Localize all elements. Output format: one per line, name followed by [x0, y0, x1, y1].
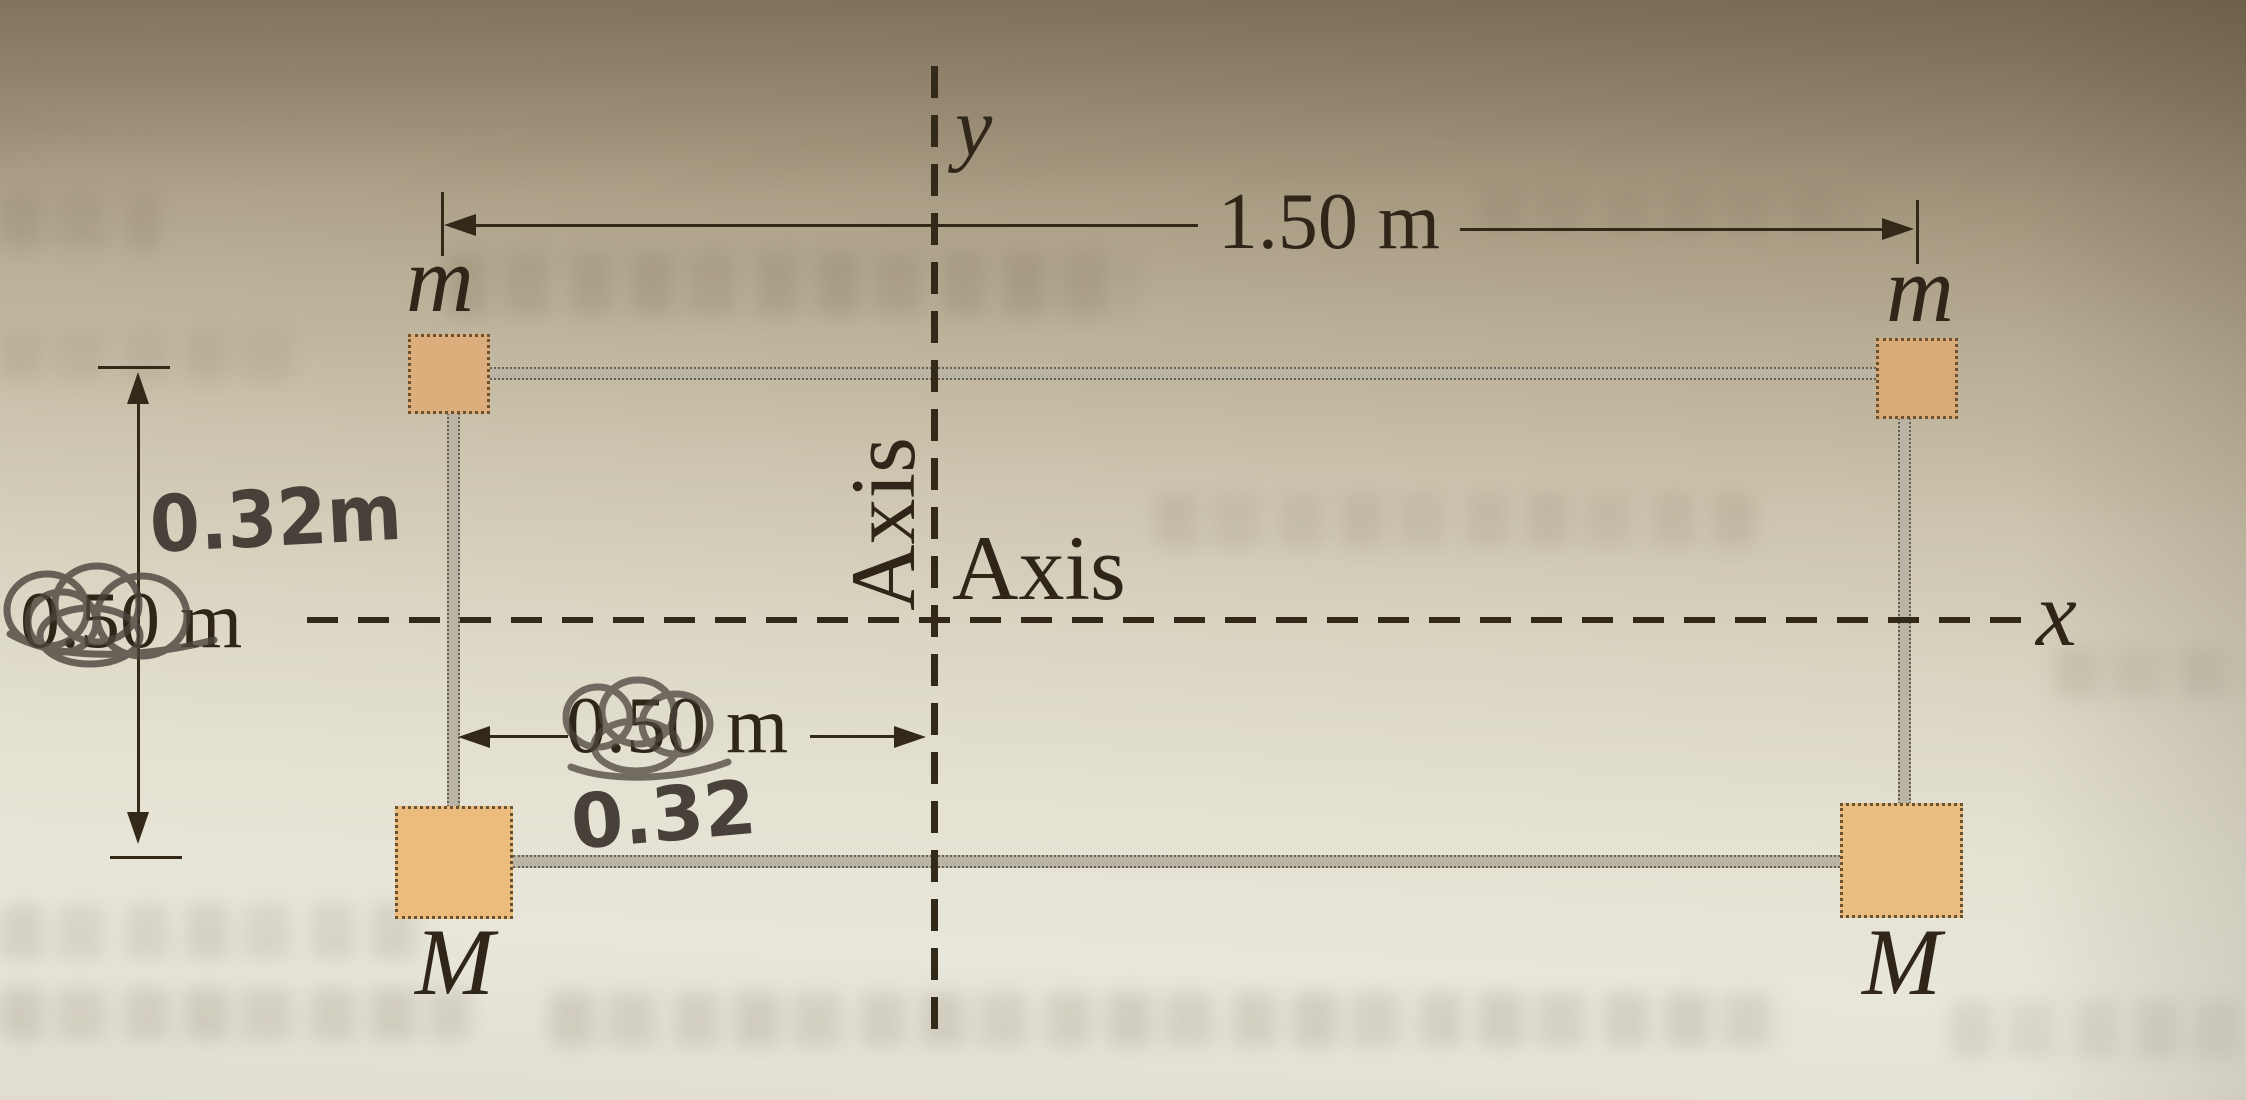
- mass-block-top-right: [1876, 338, 1958, 419]
- ghost-text-smudge: [1155, 492, 1755, 548]
- mass-block-bottom-right: [1840, 803, 1963, 918]
- dim-left-down-arrowhead: [127, 812, 149, 844]
- ghost-text-smudge: [0, 903, 430, 959]
- mass-label-top-right: m: [1886, 243, 1954, 337]
- dim-center-line-right: [810, 735, 894, 738]
- axis-label-horizontal: Axis: [952, 522, 1126, 614]
- mass-block-bottom-left: [395, 806, 513, 919]
- dim-top-right-arrowhead: [1882, 218, 1914, 240]
- ghost-text-smudge: [0, 192, 160, 250]
- x-axis-label: x: [2036, 568, 2077, 660]
- x-axis-dashed-line: [307, 617, 2021, 623]
- dim-left-handwritten-value: 0.32m: [148, 474, 404, 565]
- y-axis-label: y: [955, 86, 992, 170]
- dim-center-left-arrowhead: [458, 726, 490, 748]
- ghost-text-smudge: [0, 330, 300, 380]
- mass-label-bottom-right: M: [1862, 915, 1941, 1010]
- dim-top-label: 1.50 m: [1198, 182, 1460, 262]
- rod-right: [1898, 418, 1911, 804]
- pencil-scribble-center: [556, 672, 741, 787]
- dim-top-line-left: [474, 224, 1198, 227]
- mass-label-top-left: m: [406, 233, 474, 327]
- dim-left-up-arrowhead: [127, 372, 149, 404]
- mass-label-bottom-left: M: [415, 915, 494, 1010]
- ghost-text-smudge: [0, 988, 470, 1040]
- ghost-text-smudge: [1950, 1000, 2240, 1058]
- pencil-scribble-left: [2, 558, 237, 676]
- dim-center-right-arrowhead: [894, 726, 926, 748]
- dim-top-line-right: [1460, 228, 1884, 231]
- dim-left-top-tick: [98, 366, 170, 369]
- rod-top: [490, 367, 1876, 380]
- ghost-text-smudge: [550, 992, 1790, 1046]
- mass-block-top-left: [408, 334, 490, 414]
- ghost-text-smudge: [2055, 648, 2245, 698]
- ghost-text-smudge: [445, 252, 1135, 316]
- textbook-figure-photo: 1.50 m 0.32m 0.50 m 0.50 m 0.32 y: [0, 0, 2246, 1100]
- rod-bottom: [513, 855, 1840, 868]
- dim-left-bottom-tick: [110, 856, 182, 859]
- axis-label-vertical: Axis: [837, 437, 929, 611]
